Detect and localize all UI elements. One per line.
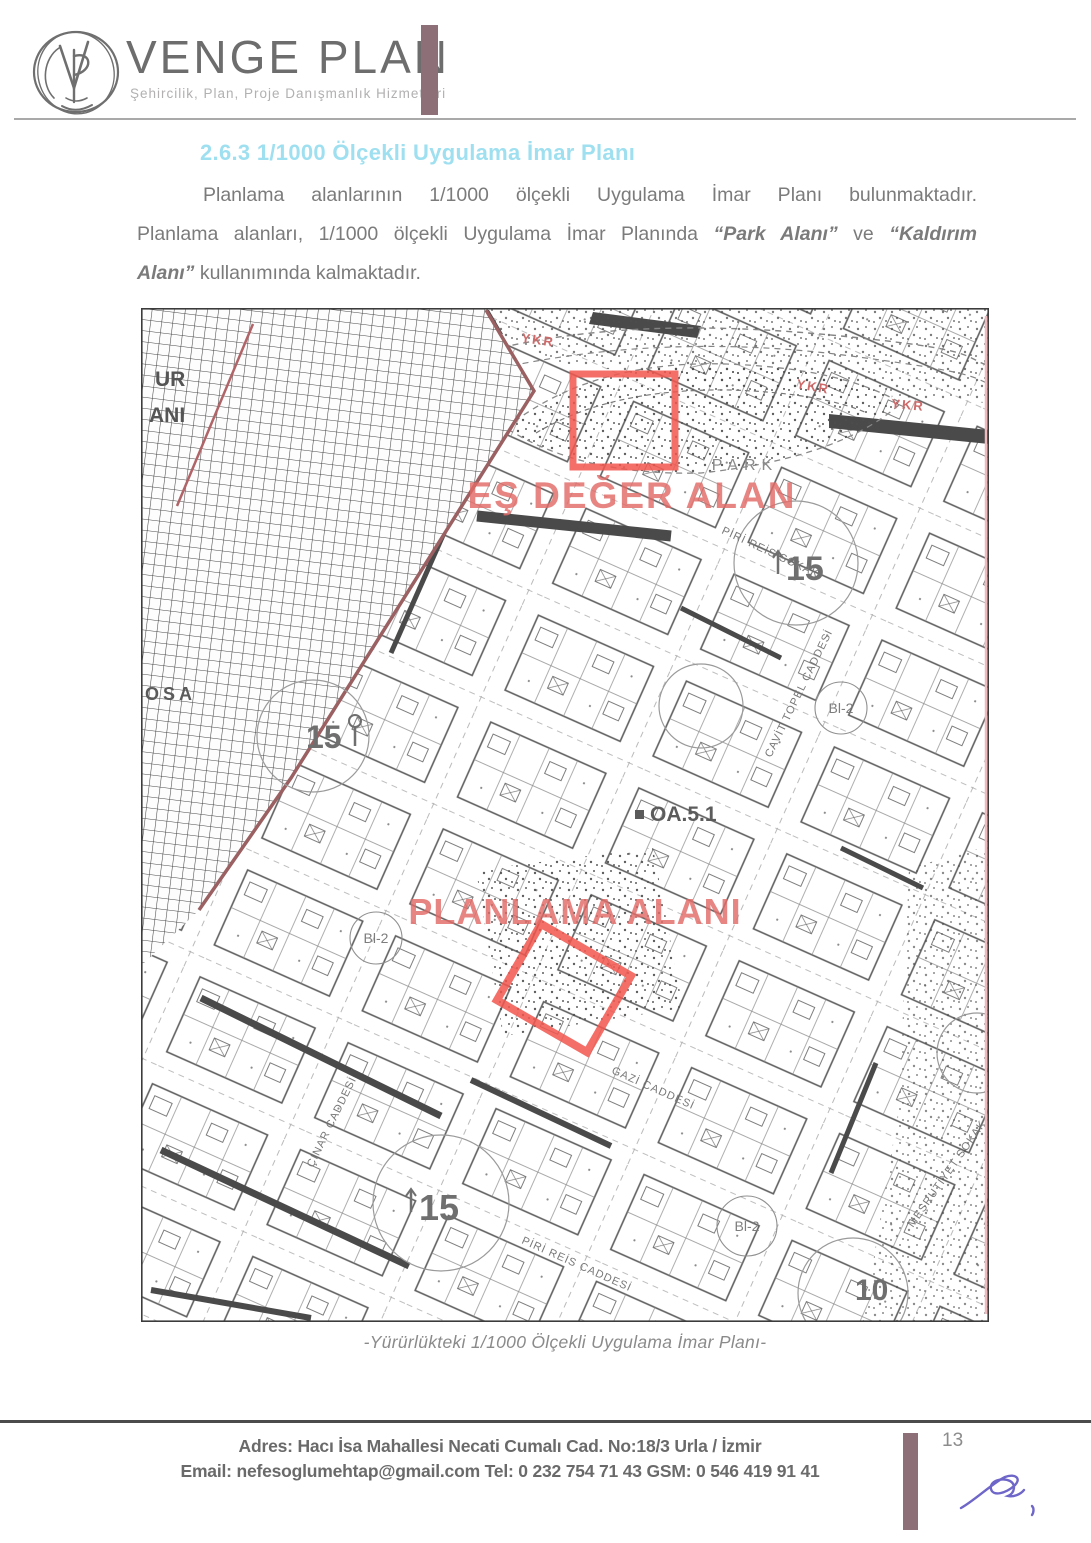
- logo-mark: [26, 22, 126, 126]
- paragraph-line-3: Alanı” kullanımında kalmaktadır.: [137, 254, 977, 293]
- brand-name: VENGE PLAN: [126, 30, 450, 84]
- body-paragraph: Planlama alanlarının 1/1000 ölçekli Uygu…: [137, 176, 977, 293]
- paragraph-line-2: Planlama alanları, 1/1000 ölçekli Uygula…: [137, 215, 977, 254]
- bl2-label-3: Bl-2: [364, 930, 389, 946]
- section-heading: 2.6.3 1/1000 Ölçekli Uygulama İmar Planı: [200, 140, 635, 166]
- footer-divider: [0, 1420, 1091, 1423]
- term-kaldirim-2: Alanı”: [137, 262, 194, 284]
- map-caption: -Yürürlükteki 1/1000 Ölçekli Uygulama İm…: [141, 1332, 989, 1353]
- document-page: { "header": { "brand": "VENGE PLAN", "ta…: [0, 0, 1091, 1543]
- zoning-map: UR ANI OSA Bl-2 Bl-2 Bl-2 PARK OA.5.1: [141, 308, 989, 1322]
- footer-contact: Email: nefesoglumehtap@gmail.com Tel: 0 …: [95, 1461, 905, 1482]
- footer-address: Adres: Hacı İsa Mahallesi Necati Cumalı …: [95, 1436, 905, 1457]
- svg-text:15: 15: [419, 1187, 459, 1228]
- svg-text:ANI: ANI: [149, 404, 185, 427]
- term-park-alani: “Park Alanı”: [714, 223, 838, 245]
- bl2-label-2: Bl-2: [735, 1218, 760, 1234]
- equivalent-area-label: EŞ DEĞER ALAN: [468, 475, 797, 516]
- svg-text:OSA: OSA: [145, 684, 196, 704]
- header-divider: [14, 118, 1076, 120]
- block-10-label: 10: [855, 1274, 888, 1307]
- svg-text:15: 15: [306, 719, 342, 755]
- planning-area-label: PLANLAMA ALANI: [408, 891, 741, 932]
- svg-text:OA.5.1: OA.5.1: [650, 803, 717, 826]
- term-kaldirim-1: “Kaldırım: [889, 223, 977, 245]
- header-accent-bar: [421, 25, 438, 115]
- handwritten-signature: [958, 1468, 1044, 1526]
- page-number: 13: [942, 1430, 963, 1452]
- paragraph-line-1: Planlama alanlarının 1/1000 ölçekli Uygu…: [137, 176, 977, 215]
- svg-text:UR: UR: [155, 368, 185, 391]
- svg-text:YKR: YKR: [891, 396, 926, 414]
- brand-tagline: Şehircilik, Plan, Proje Danışmanlık Hizm…: [130, 86, 446, 101]
- bl2-label-1: Bl-2: [829, 700, 854, 716]
- park-label: PARK: [712, 457, 778, 474]
- footer-accent-bar: [903, 1433, 918, 1530]
